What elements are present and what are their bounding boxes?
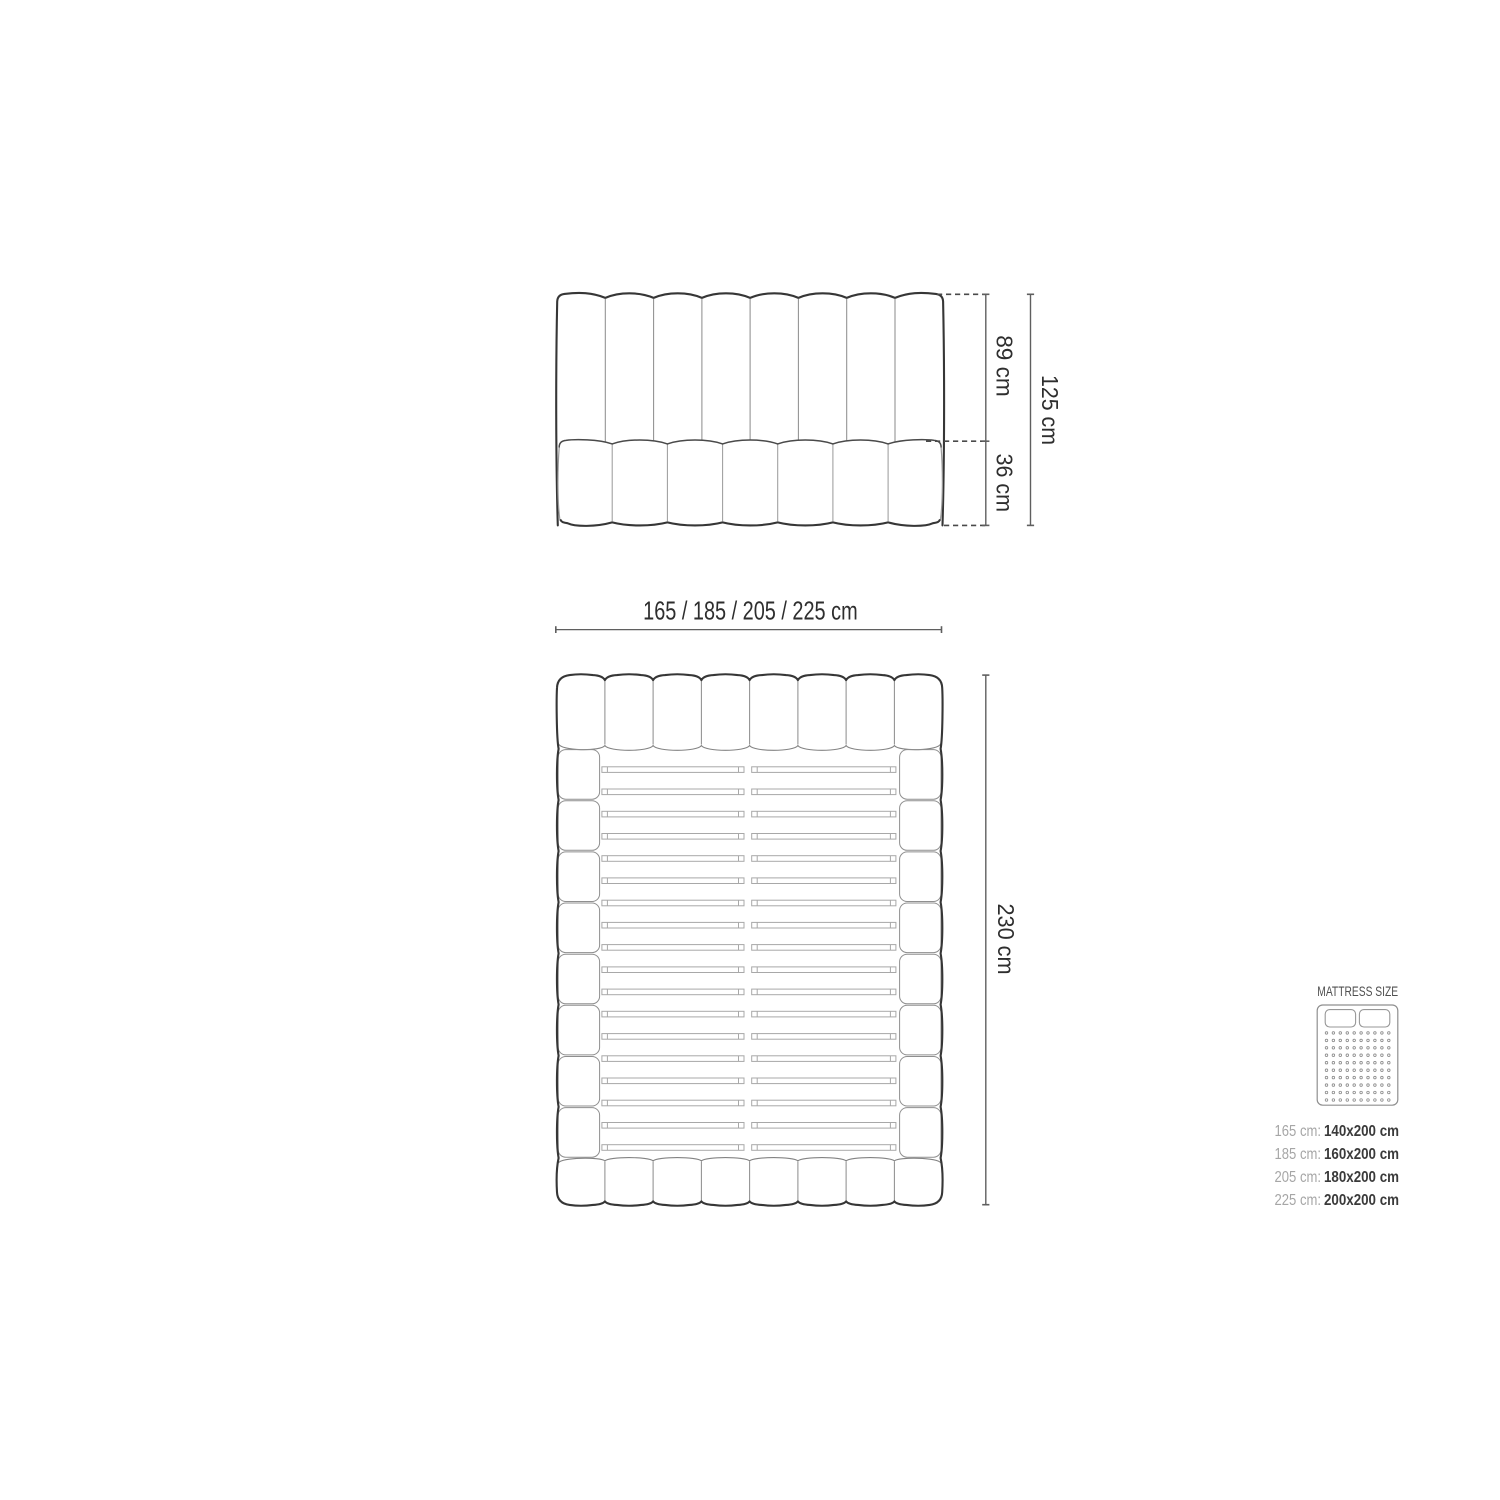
svg-text:230 cm: 230 cm [993,904,1019,975]
svg-text:180x200 cm: 180x200 cm [1324,1169,1399,1186]
svg-text:165 cm:: 165 cm: [1275,1123,1322,1140]
svg-text:125 cm: 125 cm [1037,375,1063,445]
svg-text:89 cm: 89 cm [992,335,1018,397]
svg-text:140x200 cm: 140x200 cm [1324,1123,1399,1140]
svg-text:160x200 cm: 160x200 cm [1324,1146,1399,1163]
svg-text:200x200 cm: 200x200 cm [1324,1192,1399,1209]
svg-text:165 / 185 / 205 / 225 cm: 165 / 185 / 205 / 225 cm [643,596,858,626]
svg-text:MATTRESS SIZE: MATTRESS SIZE [1317,983,1398,999]
svg-text:205 cm:: 205 cm: [1275,1169,1322,1186]
svg-text:225 cm:: 225 cm: [1275,1192,1322,1209]
svg-text:185 cm:: 185 cm: [1275,1146,1322,1163]
svg-text:36 cm: 36 cm [992,454,1018,513]
